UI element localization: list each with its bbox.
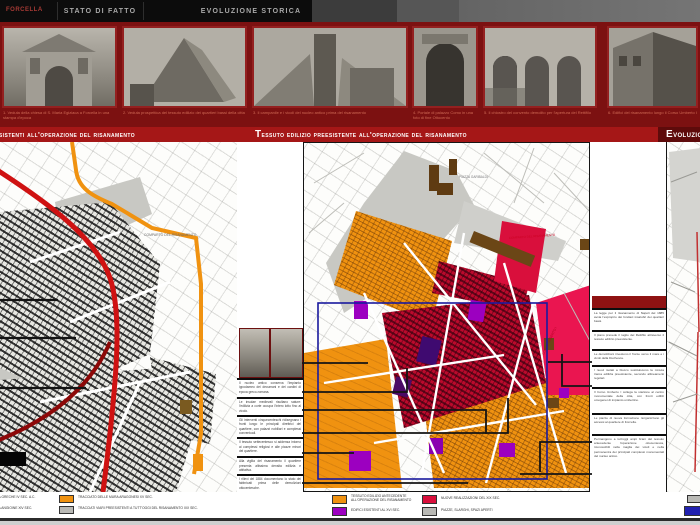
tab-separator	[143, 2, 144, 20]
legend-swatch-aragonesi	[59, 495, 74, 503]
detail-photo-alley-2	[270, 328, 303, 378]
legend-label-tracciati: TRACCIATI VIARI PREESISTENTI A TUTT'OGGI…	[78, 507, 198, 511]
annotation-note: Gli interventi cinquecenteschi ridisegna…	[237, 415, 303, 437]
castle-brown-buildings	[429, 159, 457, 195]
street-tower-sketch	[254, 28, 406, 106]
region-label: FORCELLA	[6, 7, 43, 13]
photo-caption: 4. Portale di palazzo Como in una foto d…	[413, 110, 477, 120]
legend-swatch-edifici-xvi	[332, 507, 347, 516]
tab-separator	[57, 2, 58, 20]
topbar-gray-segment	[397, 0, 459, 22]
brown-block	[547, 398, 559, 408]
annotation-note: Il nucleo antico conserva l'impianto ipp…	[237, 378, 303, 397]
legend-swatch-nuove-realizzazioni	[422, 495, 437, 504]
left-map-panel: COMPARTO DEL RISANAMENTO	[0, 142, 238, 492]
legend-label-tessuto-antecedente: TESSUTO EDILIZIO ANTECEDENTE ALL'OPERAZI…	[351, 495, 413, 503]
comparto-label: COMPARTO DEL RISANAMENTO	[509, 233, 556, 240]
topbar-gray-segment	[312, 0, 397, 22]
legend-swatch-blue-clipped	[684, 506, 700, 516]
section-title-left: Tracciati preesistenti all'operazione de…	[0, 129, 135, 140]
legend-swatch-piazze	[422, 507, 437, 516]
legend-label-aragonesi: TRACCIATO DELLE MURA ARAGONESI XV SEC.	[78, 496, 153, 500]
brown-block	[580, 239, 589, 250]
left-map-overlay: COMPARTO DEL RISANAMENTO	[0, 142, 237, 492]
corner-building-sketch	[609, 28, 696, 106]
red-route-line	[695, 232, 699, 472]
legend-left-edge-label-2: TRACCIATO DELLE MURA ANGIOINE XIV SEC.	[0, 507, 52, 511]
historical-photo-1	[2, 26, 117, 108]
church-facade-sketch	[4, 28, 115, 106]
annotation-note: Il piano prevede il taglio del Rettifilo…	[592, 330, 666, 349]
middle-annotation-column: Il nucleo antico conserva l'impianto ipp…	[237, 142, 303, 492]
section-title-right: Evoluzione storica	[666, 129, 700, 140]
map-label-box	[0, 452, 26, 466]
annotation-note: Alla vigilia del risanamento il quartier…	[237, 456, 303, 474]
red-section-bar	[592, 296, 666, 308]
right-map-panel	[666, 142, 700, 492]
street-sketch-lines	[669, 172, 697, 402]
center-map-panel: PIAZZA GARIBALDI COMPARTO DEL RISANAMENT…	[303, 142, 590, 492]
photo-caption: 1. Veduta della chiesa di S. Maria Egizi…	[3, 110, 116, 120]
tab-stato-di-fatto[interactable]: STATO DI FATTO	[60, 5, 140, 18]
annotation-note: Il tessuto settecentesco si addensa into…	[237, 437, 303, 456]
legend-label-piazze: PIAZZE, SLARGHI, SPAZI APERTI	[441, 509, 493, 513]
legend-label-nuove-realizzazioni: NUOVE REALIZZAZIONI DEL XIX SEC.	[441, 497, 500, 501]
photo-caption: 5. Il chiostro del convento demolito per…	[484, 110, 596, 115]
piazza-label: PIAZZA GARIBALDI	[459, 175, 488, 179]
orange-marker	[193, 454, 203, 471]
street-gaps	[324, 233, 566, 483]
historical-photo-2	[122, 26, 247, 108]
photo-caption: 3. Il campanile e i vicoli del nucleo an…	[253, 110, 407, 115]
historical-photo-strip: 1. Veduta della chiesa di S. Maria Egizi…	[0, 22, 700, 127]
corso-label: CORSO UMBERTO I	[541, 326, 557, 355]
cloister-arches-sketch	[485, 28, 595, 106]
section-title-center: Tessuto edilizio preesistente all'operaz…	[255, 129, 467, 140]
orange-wall-route-line	[72, 142, 201, 474]
right-notes-stack: La legge per il risanamento di Napoli de…	[592, 308, 666, 477]
legend-strip: TRACCIATO DELLE MURA GRECHE IV SEC. A.C.…	[0, 492, 700, 518]
historical-photo-4	[412, 26, 478, 108]
historical-photo-5	[483, 26, 597, 108]
legend-left-edge-label-1: TRACCIATO DELLE MURA GRECHE IV SEC. A.C.	[0, 496, 52, 500]
right-annotation-column: La legge per il risanamento di Napoli de…	[592, 142, 666, 492]
annotation-note: Le demolizioni investono il fronte verso…	[592, 349, 666, 365]
annotation-note: Le piazze di nuova formazione riorganizz…	[592, 413, 666, 434]
left-map-comparto-label: COMPARTO DEL RISANAMENTO	[144, 233, 197, 237]
legend-swatch-gray-clipped	[687, 495, 700, 503]
detail-photo-alley-1	[239, 328, 270, 378]
legend-swatch-tracciati	[59, 506, 74, 514]
middle-notes-stack: Il nucleo antico conserva l'impianto ipp…	[237, 378, 303, 492]
presentation-board: FORCELLA STATO DI FATTO EVOLUZIONE STORI…	[0, 0, 700, 525]
section-title-right-segment: Evoluzione storica	[658, 127, 700, 142]
legend-label-edifici-xvi: EDIFICI ESISTENTI AL XVI SEC.	[351, 509, 400, 513]
top-bar: FORCELLA STATO DI FATTO EVOLUZIONE STORI…	[0, 0, 700, 22]
brown-marker	[180, 400, 192, 414]
legend-swatch-tessuto-antecedente	[332, 495, 347, 504]
right-map-overlay	[667, 142, 700, 492]
tab-evoluzione-storica[interactable]: EVOLUZIONE STORICA	[190, 5, 312, 18]
annotation-note: La legge per il risanamento di Napoli de…	[592, 308, 666, 330]
topbar-gray-segment	[459, 0, 700, 22]
annotation-note: Permangono a tutt'oggi ampi brani del te…	[592, 434, 666, 477]
historical-photo-3	[252, 26, 408, 108]
historical-photo-6	[607, 26, 698, 108]
annotation-note: Le insulae medievali risultano sature: l…	[237, 397, 303, 415]
center-map-overlay: PIAZZA GARIBALDI COMPARTO DEL RISANAMENT…	[304, 143, 590, 492]
annotation-note: I rilievi del 1884 documentano lo stato …	[237, 474, 303, 492]
photo-caption: 2. Veduta prospettica del tessuto ediliz…	[123, 110, 246, 115]
photo-caption: 6. Edifici del risanamento lungo il Cors…	[608, 110, 697, 115]
annotation-note: Il Corso Umberto I collega la stazione a…	[592, 387, 666, 413]
annotation-note: I nuovi isolati a blocco sostituiscono l…	[592, 365, 666, 387]
section-title-bar: Tracciati preesistenti all'operazione de…	[0, 127, 700, 142]
portal-arch-sketch	[414, 28, 476, 106]
red-route-line	[0, 168, 117, 492]
pyramid-etching-sketch	[124, 28, 245, 106]
footer-gray-strip	[0, 521, 700, 525]
